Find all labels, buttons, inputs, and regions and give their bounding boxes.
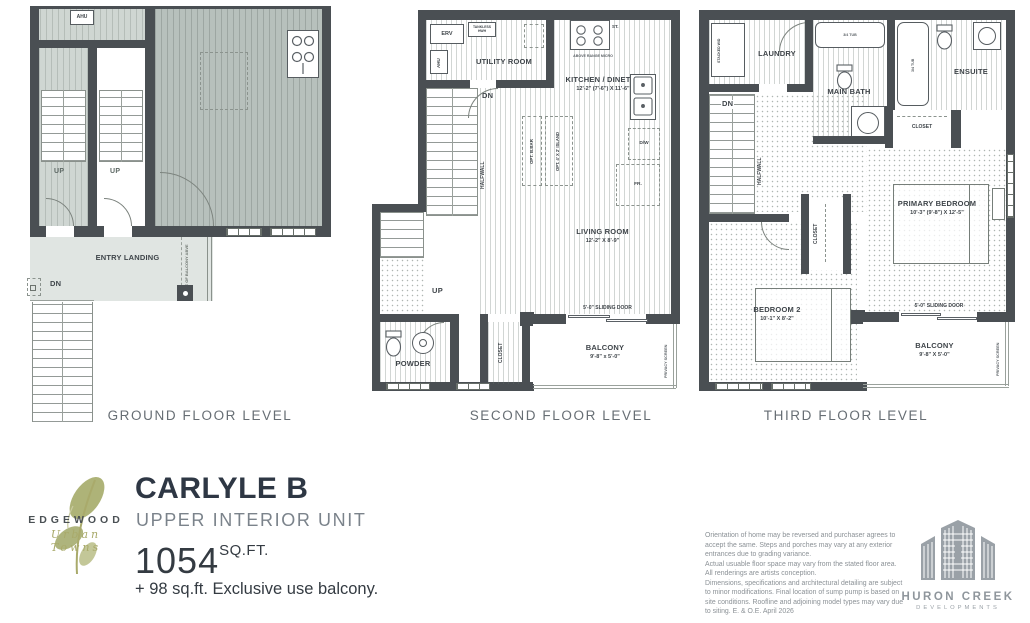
tub-icon: 3/4 TUB: [897, 22, 929, 106]
opt-bar-outline: OPT. B.BAR: [522, 116, 542, 186]
up-label: UP: [54, 168, 64, 175]
balcony-note: + 98 sq.ft. Exclusive use balcony.: [135, 580, 378, 599]
main-bath-label: MAIN BATH: [809, 88, 889, 97]
primary-bedroom-dim: 10'-3" (9'-8") X 12'-5": [871, 210, 1003, 216]
dishwasher-label: D/W: [629, 141, 659, 146]
area-value: 1054: [135, 540, 219, 581]
balcony-label: BALCONY: [560, 344, 650, 353]
area-unit: SQ.FT.: [219, 542, 269, 559]
living-room-dim: 12'-2" X 8'-9": [535, 238, 670, 244]
ahu-label: AHU: [71, 14, 93, 20]
halfwall-label: HALFWALL: [757, 142, 763, 200]
model-name: CARLYLE B: [135, 472, 308, 506]
powder-label: POWDER: [382, 360, 444, 369]
window: [226, 228, 262, 236]
balcony-edge-right: [673, 324, 677, 388]
sliding-door-leaf: [606, 319, 648, 322]
dn-label: DN: [50, 280, 61, 289]
post: [520, 312, 534, 326]
window: [386, 383, 430, 390]
wall: [450, 314, 459, 391]
ground-floor-plan: AHU UP UP ENTRY LANDING LINE OF BALCONY …: [30, 4, 332, 428]
dn-label: DN: [721, 100, 734, 109]
toilet-icon: [384, 330, 403, 358]
toilet-icon: [935, 24, 954, 51]
disclaimer-paragraph: Orientation of home may be reversed and …: [705, 531, 905, 560]
sliding-door-label: 5'-0" SLIDING DOOR: [560, 305, 655, 311]
balcony-label: BALCONY: [887, 342, 982, 351]
erv-label: ERV: [431, 31, 463, 37]
wall: [699, 10, 709, 391]
buildings-icon: [919, 518, 997, 584]
brand-name: EDGEWOOD: [25, 514, 127, 526]
vanity-sink-icon: [851, 106, 885, 140]
closet-bed-label: CLOSET: [813, 208, 819, 260]
sliding-door-leaf: [568, 315, 610, 318]
dishwasher-outline: D/W: [628, 128, 660, 160]
balcony-edge: [863, 384, 1009, 388]
closet-label: CLOSET: [498, 330, 504, 376]
disclaimer: Orientation of home may be reversed and …: [705, 531, 905, 617]
third-floor-label: THIRD FLOOR LEVEL: [736, 408, 956, 423]
balcony-edge-right: [1005, 322, 1009, 386]
living-floor: [554, 188, 671, 314]
sink-icon: [973, 22, 1001, 50]
stair-divider: [452, 88, 453, 216]
developer-subtitle: DEVELOPMENTS: [893, 605, 1023, 611]
stairs-lower: [380, 212, 424, 258]
door-opening: [759, 84, 787, 92]
wall: [480, 314, 488, 391]
brand-logo: EDGEWOOD Urban Towns: [25, 466, 127, 582]
stacked-wd-label: STACKED W/D: [717, 28, 721, 74]
window: [715, 383, 763, 390]
unit-type: UPPER INTERIOR UNIT: [136, 510, 366, 531]
equipment-outline: [524, 24, 544, 48]
door-opening: [104, 226, 132, 237]
ground-floor-label: GROUND FLOOR LEVEL: [90, 408, 310, 423]
up-label: UP: [432, 286, 443, 295]
developer-logo: HURON CREEK DEVELOPMENTS: [893, 518, 1023, 618]
stove-icon: [570, 20, 610, 50]
window: [270, 228, 316, 236]
closet-rod: [897, 116, 947, 117]
bed-pillow-line: [831, 288, 832, 362]
third-floor-plan: STACKED W/D LAUNDRY 3/4 TUB MAIN BATH 3/…: [697, 8, 1017, 400]
primary-bedroom-label: PRIMARY BEDROOM: [871, 200, 1003, 209]
wall: [887, 20, 895, 110]
wall: [322, 6, 331, 237]
stair-divider: [121, 90, 122, 162]
privacy-screen-label: PRIVACY SCREEN: [664, 338, 668, 384]
balcony-dim: 9'-8" x 5'-0": [560, 354, 650, 360]
bed-pillow-line: [969, 184, 970, 264]
stair-divider: [62, 302, 63, 422]
wall: [885, 106, 893, 148]
ahu-label: AHU: [436, 53, 441, 73]
balcony-edge: [533, 385, 676, 389]
bed: [893, 184, 989, 264]
fridge-label: FR.: [617, 182, 659, 187]
opt-island-label: OPT. 4' X 2' ISLAND: [555, 120, 560, 184]
wall: [951, 110, 961, 148]
micro-label: ABOVE RANGE MICRO: [572, 54, 614, 59]
wall: [418, 10, 680, 20]
stacked-washer-dryer: STACKED W/D: [711, 23, 745, 77]
wall: [372, 204, 380, 391]
wall: [843, 194, 851, 274]
up-label: UP: [110, 168, 120, 175]
window: [456, 383, 490, 390]
halfwall-label: HALFWALL: [480, 146, 486, 204]
bedroom2-label: BEDROOM 2: [717, 306, 837, 315]
door-opening: [46, 226, 74, 237]
disclaimer-paragraph: Actual usuable floor space may vary from…: [705, 560, 905, 579]
stair-divider: [732, 94, 733, 214]
stove-label: ST.: [612, 24, 619, 29]
hall-floor: [480, 88, 554, 314]
wall: [709, 214, 789, 222]
sliding-door-leaf: [937, 317, 977, 320]
double-sink-icon: [630, 74, 656, 120]
wall: [813, 136, 893, 144]
tankless-hwh-box: TANKLESS HWH: [468, 22, 496, 37]
bed: [755, 288, 851, 362]
fridge-outline: FR.: [616, 164, 660, 206]
landing-edge: [30, 300, 94, 301]
entry-landing-label: ENTRY LANDING: [85, 254, 170, 263]
door-opening: [470, 80, 496, 88]
stair-divider: [63, 90, 64, 162]
disclaimer-paragraph: Dimensions, specifications and architect…: [705, 579, 905, 617]
privacy-screen-label: PRIVACY SCREEN: [996, 336, 1000, 382]
stove-icon: [287, 30, 319, 78]
wall: [699, 10, 1015, 20]
closet-bath-label: CLOSET: [893, 124, 951, 130]
ahu-box: AHU: [70, 10, 94, 25]
bedroom2-dim: 10'-1" X 8'-2": [717, 316, 837, 322]
balcony-dim: 9'-8" X 5'-0": [887, 352, 982, 358]
wall: [88, 40, 97, 226]
wall: [671, 10, 680, 323]
wall: [145, 6, 155, 226]
balcony-rail: [207, 237, 212, 301]
erv-box: ERV: [430, 24, 464, 44]
door-swing: [104, 198, 132, 226]
tub-main-label: 3/4 TUB: [816, 33, 884, 37]
column-outline: [27, 278, 41, 296]
tankless-label: TANKLESS HWH: [470, 25, 494, 34]
pedestal-sink-icon: [412, 332, 434, 354]
wall: [805, 20, 813, 92]
post: [177, 285, 193, 301]
opt-island-outline: OPT. 4' X 2' ISLAND: [545, 116, 573, 186]
table-outline: [200, 52, 248, 110]
wall: [418, 10, 426, 212]
window: [771, 383, 811, 390]
wall: [380, 314, 458, 322]
ensuite-label: ENSUITE: [937, 68, 1005, 77]
closet-floor: [488, 322, 522, 384]
tub-ensuite-label: 3/4 TUB: [911, 29, 915, 101]
ahu-box: AHU: [430, 50, 448, 74]
stair-landing: [380, 258, 424, 316]
second-floor-label: SECOND FLOOR LEVEL: [451, 408, 671, 423]
utility-room-label: UTILITY ROOM: [462, 58, 546, 67]
window: [1007, 154, 1014, 218]
wall: [801, 194, 809, 274]
developer-name: HURON CREEK: [893, 591, 1023, 603]
area-line: 1054SQ.FT.: [135, 540, 269, 582]
brand-script: Urban Towns: [25, 528, 127, 554]
sliding-door-label: 5'-0" SLIDING DOOR: [893, 303, 985, 309]
tub-icon: 3/4 TUB: [815, 22, 885, 48]
sliding-door-leaf: [901, 313, 941, 316]
opt-bar-label: OPT. B.BAR: [529, 123, 534, 181]
second-floor-plan: ERV AHU TANKLESS HWH UTILITY ROOM DN HAL…: [370, 8, 682, 400]
floorplan-sheet: AHU UP UP ENTRY LANDING LINE OF BALCONY …: [0, 0, 1030, 623]
closet-rod: [825, 204, 826, 262]
living-room-label: LIVING ROOM: [535, 228, 670, 237]
